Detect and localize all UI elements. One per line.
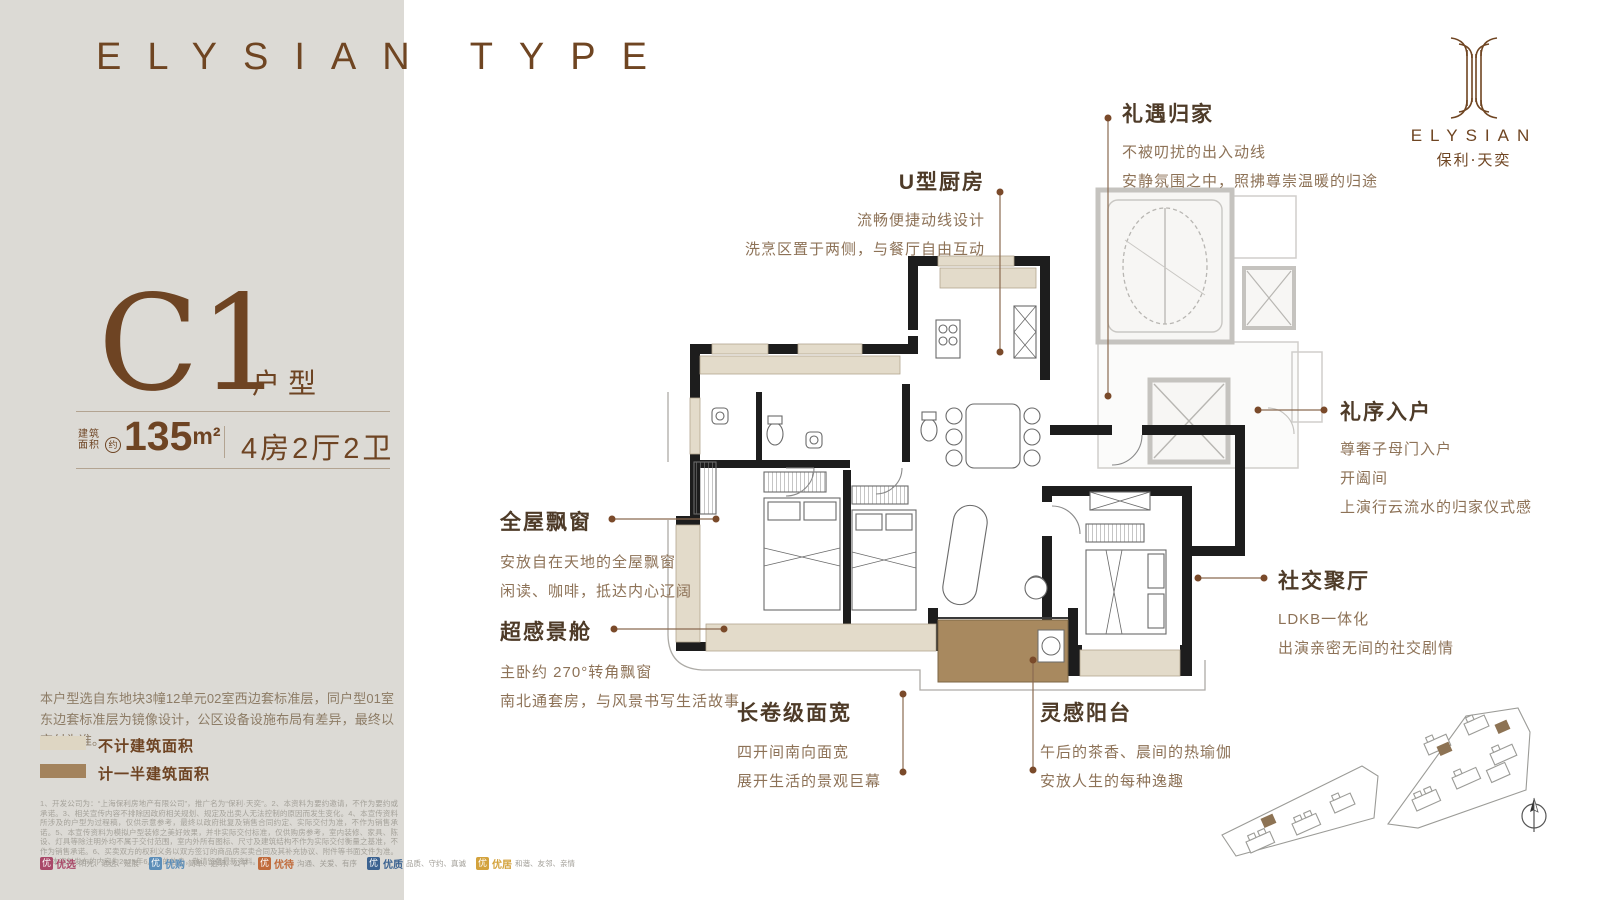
callout-viewcabin: 超感景舱 主卧约 270°转角飘窗 南北通套房，与风景书写生活故事	[500, 616, 740, 716]
callout-kitchen: U型厨房 流畅便捷动线设计 洗烹区置于两侧，与餐厅自由互动	[705, 166, 985, 264]
balcony-area	[938, 618, 1068, 682]
callout-baywindow: 全屋飘窗 安放自在天地的全屋飘窗 闲读、咖啡，抵达内心辽阔	[500, 506, 692, 606]
furniture	[694, 306, 1166, 634]
callout-social-title: 社交聚厅	[1278, 565, 1454, 595]
callout-facade-title: 长卷级面宽	[737, 697, 881, 727]
callout-entry-title: 礼序入户	[1340, 396, 1532, 426]
callout-facade: 长卷级面宽 四开间南向面宽 展开生活的景观巨幕	[737, 697, 881, 796]
callout-homecoming-title: 礼遇归家	[1122, 98, 1378, 128]
site-plan	[1222, 708, 1530, 856]
callout-balcony: 灵感阳台 午后的茶香、晨间的热瑜伽 安放人生的每种逸趣	[1040, 697, 1232, 796]
compass-icon	[1522, 798, 1546, 832]
callout-baywindow-title: 全屋飘窗	[500, 506, 692, 536]
callout-kitchen-title: U型厨房	[705, 166, 985, 196]
callout-entry: 礼序入户 尊奢子母门入户 开阖间 上演行云流水的归家仪式感	[1340, 396, 1532, 522]
callout-balcony-title: 灵感阳台	[1040, 697, 1232, 727]
floorplan-brochure-page: { "header": {"brand_left": "ELYSIAN", "b…	[0, 0, 1600, 900]
callout-homecoming: 礼遇归家 不被叨扰的出入动线 安静氛围之中，照拂尊崇温暖的归途	[1122, 98, 1378, 196]
callout-social: 社交聚厅 LDKB一体化 出演亲密无间的社交剧情	[1278, 565, 1454, 663]
callout-viewcabin-title: 超感景舱	[500, 616, 740, 646]
